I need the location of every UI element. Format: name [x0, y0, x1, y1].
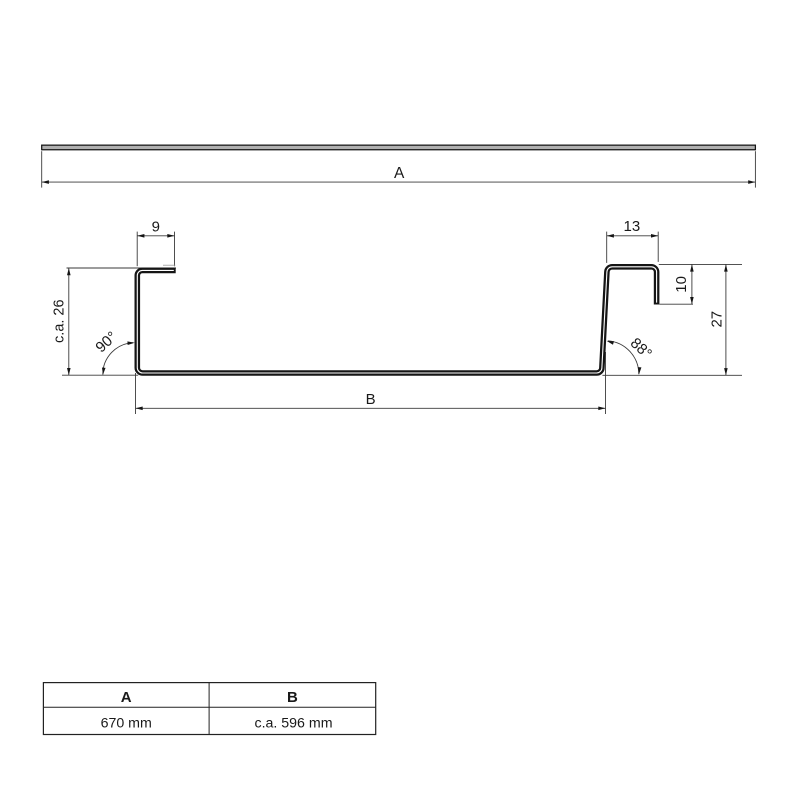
svg-text:90°: 90° — [92, 328, 120, 356]
svg-text:27: 27 — [708, 311, 725, 328]
svg-text:670 mm: 670 mm — [101, 715, 152, 731]
svg-text:B: B — [287, 689, 298, 706]
svg-text:9: 9 — [152, 218, 160, 235]
svg-text:c.a. 596 mm: c.a. 596 mm — [254, 715, 332, 731]
svg-text:10: 10 — [673, 276, 690, 293]
svg-text:A: A — [121, 689, 132, 706]
svg-text:13: 13 — [624, 218, 641, 235]
svg-text:B: B — [366, 391, 376, 408]
svg-text:88°: 88° — [627, 335, 655, 363]
svg-text:A: A — [394, 165, 405, 182]
svg-text:c.a. 26: c.a. 26 — [52, 299, 68, 343]
